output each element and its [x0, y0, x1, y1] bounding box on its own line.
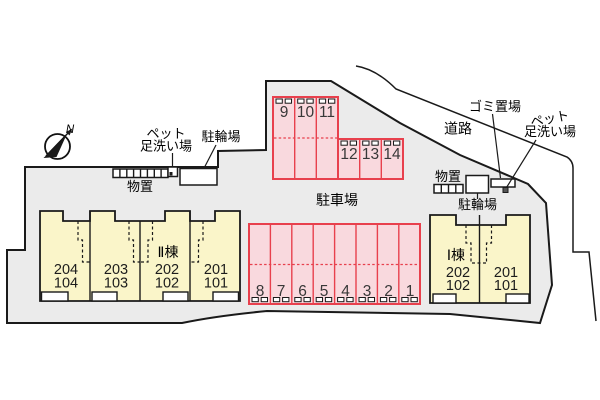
parking-block-middle: 12 13 14: [338, 139, 403, 179]
parking-space-number: 11: [319, 104, 335, 121]
unit-number: 104: [54, 276, 78, 292]
wheel-stop: [276, 99, 282, 103]
parking-space-number: 4: [341, 283, 350, 300]
entrance-porch: [433, 294, 456, 303]
site-plan-image: 9 10 11 12 13 14: [0, 0, 600, 400]
parking-space-number: 14: [383, 146, 401, 163]
building-1-name: Ⅰ棟: [447, 247, 465, 263]
wheel-stop: [372, 141, 378, 145]
parking-area-label: 駐車場: [316, 192, 358, 208]
parking-block-lower: 8 7 6 5 4 3 2 1: [249, 224, 420, 304]
parking-block-upper: 9 10 11: [273, 97, 338, 179]
parking-space-number: 6: [298, 283, 307, 300]
pet-wash-left-mark: [170, 172, 173, 176]
road-label: 道路: [444, 121, 472, 137]
unit-number: 103: [104, 276, 128, 292]
building-2: Ⅱ棟 204 104 203 103 202 102 201 101: [40, 211, 240, 301]
pet-wash-right-label-line2: 足洗い場: [524, 124, 576, 139]
parking-space-number: 12: [340, 146, 357, 163]
wheel-stop: [298, 99, 304, 103]
wheel-stop: [350, 141, 356, 145]
bicycle-right-label: 駐輪場: [458, 197, 497, 212]
wheel-stop: [363, 141, 369, 145]
unit-number: 101: [204, 276, 228, 292]
wheel-stop: [384, 141, 390, 145]
pet-wash-left-label-line2: 足洗い場: [140, 139, 192, 154]
storage-left-label: 物置: [127, 179, 153, 194]
wheel-stop: [319, 99, 325, 103]
unit-number: 101: [494, 278, 518, 294]
parking-space-number: 1: [406, 283, 415, 300]
parking-space-number: 7: [277, 283, 286, 300]
parking-space-number: 10: [297, 104, 315, 121]
storage-right-label: 物置: [435, 169, 461, 184]
bicycle-left-shelter: [180, 169, 217, 186]
garbage-label: ゴミ置場: [469, 99, 521, 114]
wheel-stop: [329, 99, 335, 103]
parking-space-number: 13: [362, 146, 379, 163]
entrance-porch: [42, 292, 69, 301]
site-plan-svg: 9 10 11 12 13 14: [0, 0, 600, 400]
wheel-stop: [341, 141, 347, 145]
entrance-porch: [213, 292, 239, 301]
unit-number: 102: [446, 278, 470, 294]
bicycle-right-shelter: [466, 176, 489, 194]
parking-space-number: 9: [280, 104, 289, 121]
building-1: Ⅰ棟 202 102 201 101: [430, 215, 530, 303]
entrance-porch: [163, 292, 188, 301]
parking-space-number: 3: [363, 283, 372, 300]
building-2-name: Ⅱ棟: [158, 244, 179, 260]
parking-space-number: 5: [320, 283, 329, 300]
pet-wash-left-station: [168, 167, 178, 177]
entrance-porch: [506, 294, 529, 303]
storage-right: 物置: [434, 169, 463, 193]
parking-space-number: 8: [256, 283, 265, 300]
entrance-porch: [92, 292, 117, 301]
wheel-stop: [307, 99, 313, 103]
pet-wash-right-station: [503, 188, 508, 193]
wheel-stop: [394, 141, 400, 145]
unit-number: 102: [155, 276, 179, 292]
compass: N: [44, 124, 75, 159]
compass-north-label: N: [66, 124, 75, 136]
parking-space-number: 2: [384, 283, 393, 300]
wheel-stop: [285, 99, 291, 103]
bicycle-left-label: 駐輪場: [201, 129, 240, 144]
